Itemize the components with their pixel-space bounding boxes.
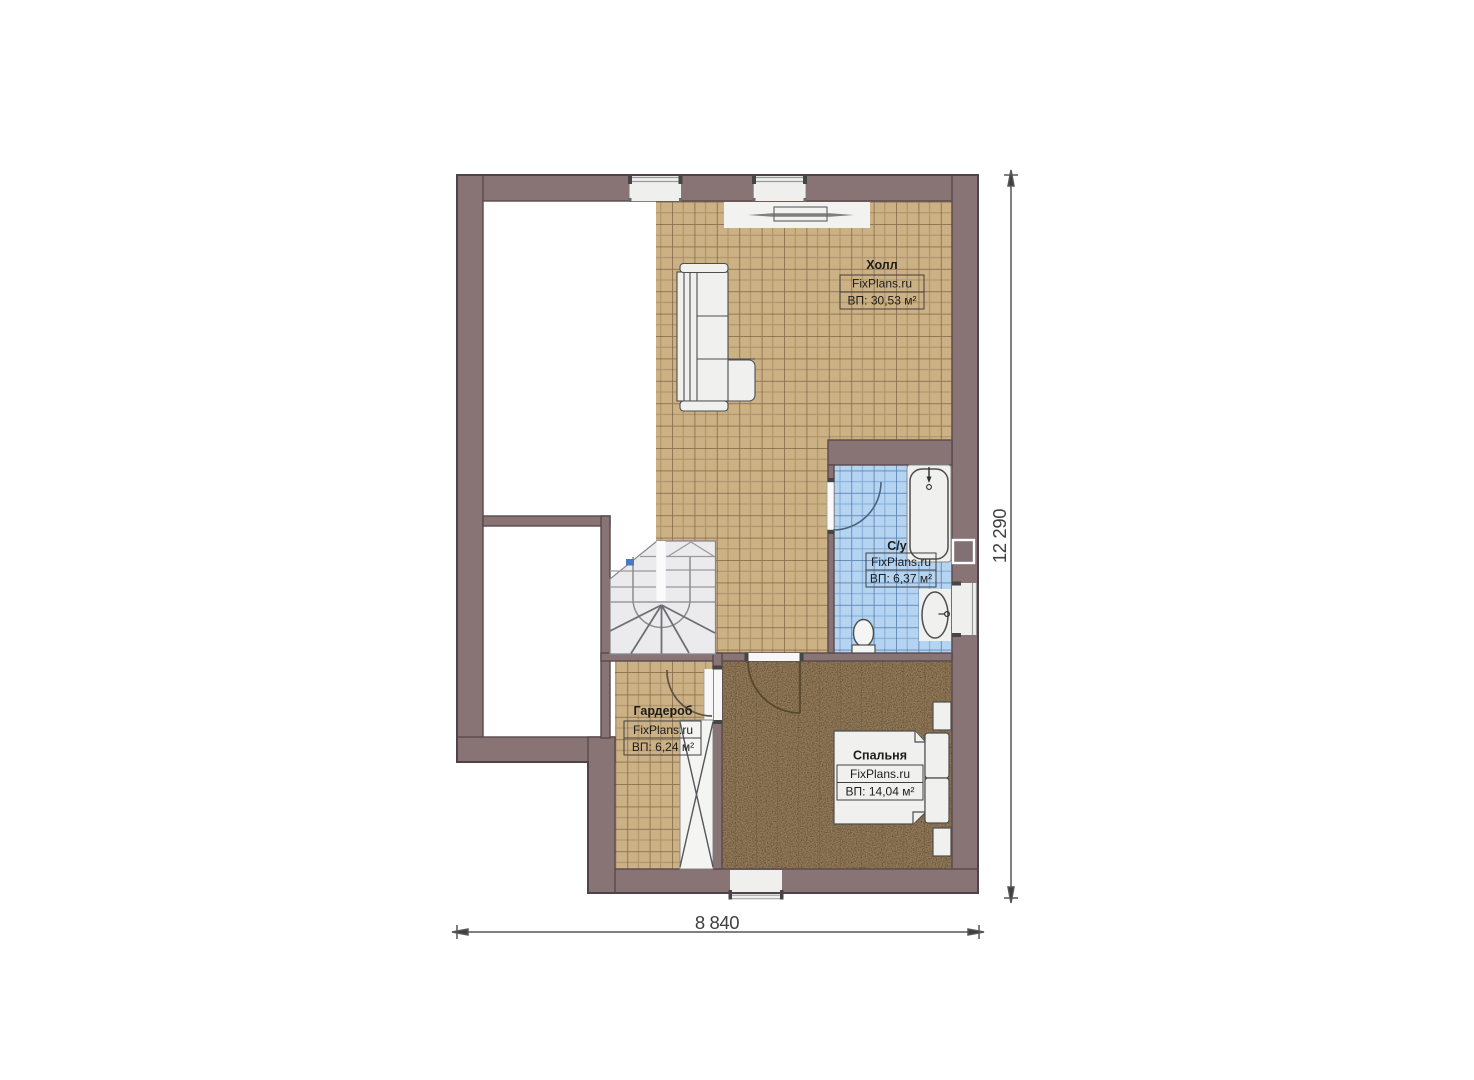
svg-text:Холл: Холл bbox=[866, 258, 897, 272]
svg-text:FixPlans.ru: FixPlans.ru bbox=[852, 277, 912, 291]
svg-text:FixPlans.ru: FixPlans.ru bbox=[633, 723, 693, 737]
svg-text:ВП: 30,53 м²: ВП: 30,53 м² bbox=[848, 294, 917, 308]
svg-text:Спальня: Спальня bbox=[853, 749, 907, 763]
svg-text:8 840: 8 840 bbox=[695, 912, 739, 933]
svg-text:ВП: 6,24 м²: ВП: 6,24 м² bbox=[632, 740, 694, 754]
svg-text:12 290: 12 290 bbox=[989, 509, 1010, 563]
svg-text:ВП: 14,04 м²: ВП: 14,04 м² bbox=[846, 785, 915, 799]
svg-text:С/у: С/у bbox=[887, 539, 907, 553]
svg-text:FixPlans.ru: FixPlans.ru bbox=[850, 767, 910, 781]
svg-text:ВП: 6,37 м²: ВП: 6,37 м² bbox=[870, 572, 932, 586]
svg-text:FixPlans.ru: FixPlans.ru bbox=[871, 555, 931, 569]
svg-text:Гардероб: Гардероб bbox=[633, 704, 692, 718]
